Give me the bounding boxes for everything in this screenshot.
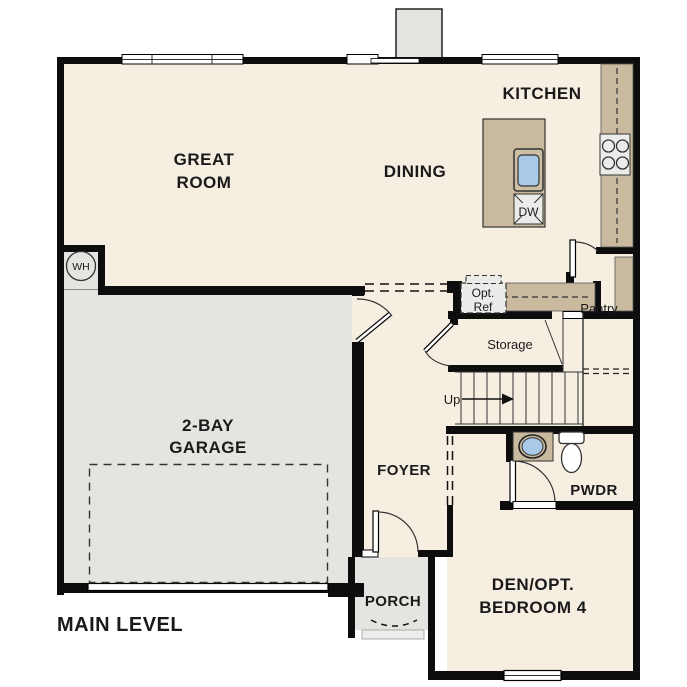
front-door-leaf (373, 511, 379, 552)
label-den-line1: DEN/OPT. (492, 575, 574, 594)
floorplan-canvas: GREAT ROOM DINING KITCHEN 2-BAY GARAGE F… (0, 0, 687, 687)
label-opt-ref-line2: Ref (474, 300, 493, 314)
pantry-door-leaf (570, 240, 576, 277)
label-foyer: FOYER (377, 462, 431, 479)
wall-exterior-right (633, 57, 640, 680)
wall-pantry-top (596, 247, 633, 254)
label-garage-line1: 2-BAY (182, 416, 234, 435)
wall-storage-bottom (448, 365, 563, 372)
porch-step (362, 630, 424, 639)
wall-den-left-lower (428, 557, 435, 678)
label-water-heater: WH (72, 261, 90, 273)
wall-greatroom-garage (98, 286, 365, 295)
label-dishwasher: DW (519, 205, 540, 219)
wall-porch-left (348, 557, 355, 638)
floorplan-main-level: GREAT ROOM DINING KITCHEN 2-BAY GARAGE F… (0, 0, 687, 687)
wall-wh-nook-right (98, 245, 105, 290)
label-great-room-line1: GREAT (174, 150, 235, 169)
label-dining: DINING (384, 162, 447, 181)
label-storage: Storage (487, 337, 533, 352)
front-door-opening (378, 550, 418, 557)
fireplace-hearth-ledge (371, 59, 419, 64)
label-den-line2: BEDROOM 4 (479, 598, 587, 617)
label-pantry: Pantry (580, 301, 618, 316)
wall-foyer-bottom-right (418, 550, 453, 557)
chimney-bumpout (396, 9, 442, 58)
toilet-tank (559, 432, 584, 444)
wall-exterior-left (57, 57, 64, 595)
pwdr-door-leaf (510, 460, 516, 503)
wall-den-left-upper (447, 505, 453, 557)
wall-pwdr-den-divider (556, 501, 640, 510)
label-kitchen: KITCHEN (502, 84, 581, 103)
label-stairs-up: Up (444, 392, 461, 407)
wall-garage-bottom-corner (328, 583, 364, 597)
island-sink-basin (518, 155, 539, 186)
label-main-level: MAIN LEVEL (57, 614, 183, 636)
label-great-room-line2: ROOM (177, 173, 232, 192)
garage-door (88, 584, 328, 591)
optional-refrigerator-top (466, 276, 501, 284)
pwdr-sink-basin (522, 438, 543, 456)
label-garage-line2: GARAGE (169, 438, 247, 457)
label-opt-ref-line1: Opt. (472, 286, 495, 300)
wall-pwdr-left-stub (506, 434, 513, 462)
pwdr-door-threshold (513, 502, 556, 509)
label-porch: PORCH (365, 593, 421, 610)
room-fill-storage-stairs-pwdr-den (447, 286, 633, 676)
toilet-bowl (562, 444, 582, 473)
label-pwdr: PWDR (570, 482, 617, 499)
